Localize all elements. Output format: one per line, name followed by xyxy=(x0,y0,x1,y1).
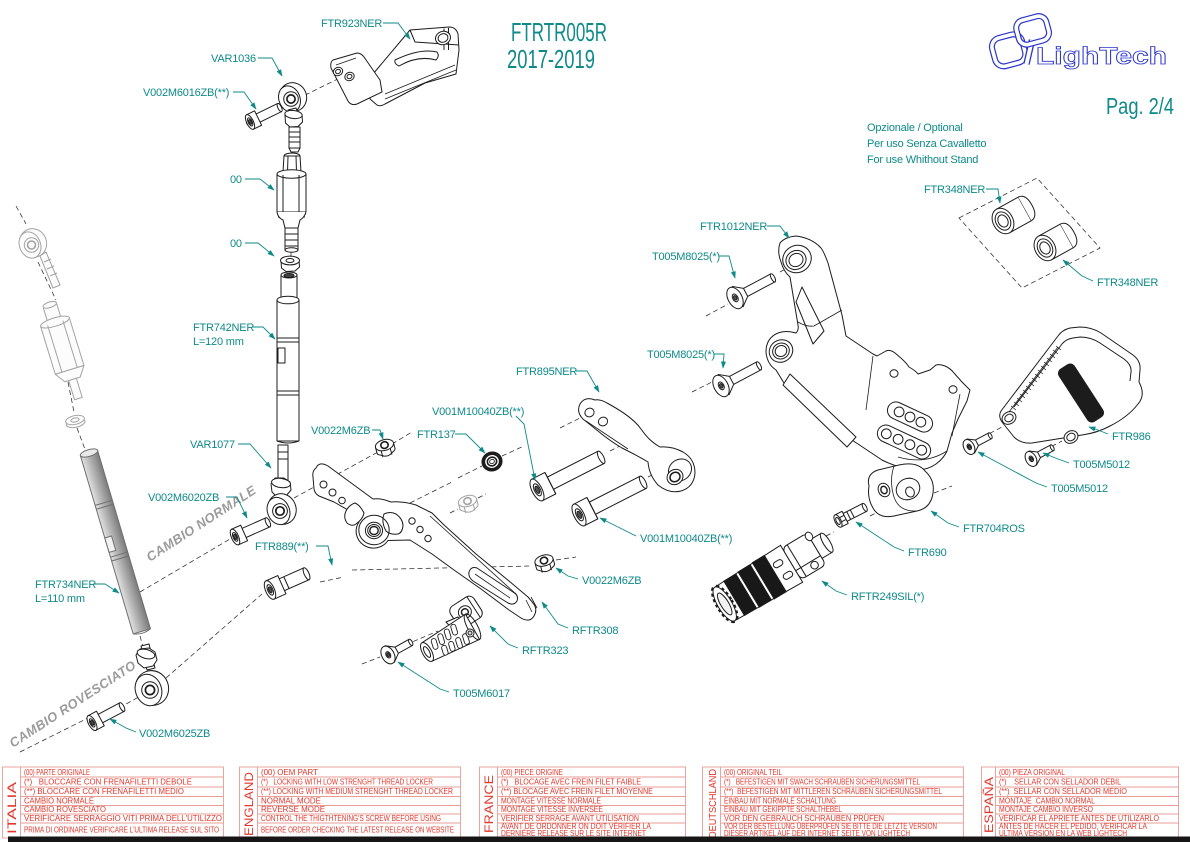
svg-text:For use Whithout Stand: For use Whithout Stand xyxy=(867,154,978,166)
svg-text:DERNIÉRE RELEASE SUR LE SITE I: DERNIÉRE RELEASE SUR LE SITE INTERNET xyxy=(501,829,646,838)
svg-text:00: 00 xyxy=(230,238,242,250)
svg-text:(*) LOCKING WITH LOW STRENGH: (*) LOCKING WITH LOW STRENGHT THREAD LOC… xyxy=(261,777,433,787)
svg-text:T005M8025(*): T005M8025(*) xyxy=(652,251,720,263)
svg-text:FTR742NER: FTR742NER xyxy=(193,322,254,334)
svg-text:(00) OEM PART: (00) OEM PART xyxy=(261,767,318,777)
svg-text:FTR348NER: FTR348NER xyxy=(924,184,985,196)
svg-text:LighTech: LighTech xyxy=(1036,43,1167,70)
svg-text:FTR895NER: FTR895NER xyxy=(516,366,577,378)
svg-text:(**) BEFESTIGEN MIT MITTLEREN: (**) BEFESTIGEN MIT MITTLEREN SCHRAUBEN … xyxy=(724,786,942,796)
svg-text:VERIFICARE SERRAGGIO VITI PRIM: VERIFICARE SERRAGGIO VITI PRIMA DELL'UTI… xyxy=(24,813,223,823)
svg-text:(*) BLOCAGE AVEC FREIN FILET: (*) BLOCAGE AVEC FREIN FILET FAIBLE xyxy=(501,777,641,787)
svg-text:FTR1012NER: FTR1012NER xyxy=(700,221,767,233)
svg-text:VAR1036: VAR1036 xyxy=(211,53,256,65)
svg-text:V002M6016ZB(**): V002M6016ZB(**) xyxy=(143,87,229,99)
svg-text:Per uso Senza Cavalletto: Per uso Senza Cavalletto xyxy=(867,138,986,150)
svg-text:CONTROL THE THIGTHTENING'S SCR: CONTROL THE THIGTHTENING'S SCREW BEFORE … xyxy=(261,813,441,823)
svg-text:Opzionale / Optional: Opzionale / Optional xyxy=(867,122,963,134)
svg-text:FTR734NER: FTR734NER xyxy=(35,579,96,591)
svg-text:ENGLAND: ENGLAND xyxy=(244,772,256,836)
svg-text:(*) SELLAR CON SELLADOR DEB: (*) SELLAR CON SELLADOR DEBIL xyxy=(999,777,1121,787)
svg-text:ITALIA: ITALIA xyxy=(7,782,19,834)
svg-text:T005M8025(*): T005M8025(*) xyxy=(647,349,715,361)
svg-text:(00) ORIGINAL TEIL: (00) ORIGINAL TEIL xyxy=(724,767,782,777)
svg-text:V001M10040ZB(**): V001M10040ZB(**) xyxy=(640,533,732,545)
svg-text:V0022M6ZB: V0022M6ZB xyxy=(582,575,641,587)
svg-text:BEFORE ORDER CHECKING THE LATE: BEFORE ORDER CHECKING THE LATEST RELEASE… xyxy=(261,826,454,835)
svg-text:T005M5012: T005M5012 xyxy=(1051,483,1108,495)
svg-text:DEUTSCHLAND: DEUTSCHLAND xyxy=(707,769,719,838)
svg-text:2017-2019: 2017-2019 xyxy=(507,44,595,74)
svg-text:(**) SELLAR CON SELLADOR MEDI: (**) SELLAR CON SELLADOR MEDIO xyxy=(999,786,1127,796)
svg-text:FTR986: FTR986 xyxy=(1112,431,1151,443)
svg-text:PRIMA DI ORDINARE VERIFICARE L: PRIMA DI ORDINARE VERIFICARE L'ULTIMA RE… xyxy=(24,826,219,835)
svg-text:RFTR249SIL(*): RFTR249SIL(*) xyxy=(851,591,924,603)
svg-text:FTR704ROS: FTR704ROS xyxy=(963,523,1025,535)
svg-text:(*) BEFESTIGEN MIT SWACH SCH: (*) BEFESTIGEN MIT SWACH SCHRAUBEN SICHE… xyxy=(724,777,920,787)
svg-text:FTRTR005R: FTRTR005R xyxy=(511,17,607,47)
svg-text:T005M6017: T005M6017 xyxy=(453,688,510,700)
svg-text:RFTR308: RFTR308 xyxy=(572,625,618,637)
svg-text:RFTR323: RFTR323 xyxy=(522,645,568,657)
svg-text:(*) BLOCCARE CON FRENAFILETT: (*) BLOCCARE CON FRENAFILETTI DEBOLE xyxy=(24,777,192,787)
svg-text:ULTIMA VERSION EN LA WEB LIGHT: ULTIMA VERSION EN LA WEB LIGHTECH xyxy=(999,829,1127,838)
svg-text:V002M6025ZB: V002M6025ZB xyxy=(139,728,210,740)
svg-text:00: 00 xyxy=(230,174,242,186)
svg-text:FTR923NER: FTR923NER xyxy=(321,18,382,30)
svg-text:FTR348NER: FTR348NER xyxy=(1097,277,1158,289)
svg-text:DIESER ARTIKEL AUF DER INTERNE: DIESER ARTIKEL AUF DER INTERNET SEITE VO… xyxy=(724,829,910,838)
svg-text:FTR889(**): FTR889(**) xyxy=(255,541,309,553)
svg-text:(**) BLOCCARE CON FRENAFILETTI: (**) BLOCCARE CON FRENAFILETTI MEDIO xyxy=(24,786,184,796)
svg-text:FRANCE: FRANCE xyxy=(484,775,496,833)
svg-text:(**) LOCKING WITH MEDIUM STREN: (**) LOCKING WITH MEDIUM STRENGHT THREAD… xyxy=(261,786,453,796)
svg-text:Pag. 2/4: Pag. 2/4 xyxy=(1106,93,1174,119)
svg-text:T005M5012: T005M5012 xyxy=(1073,459,1130,471)
svg-text:V001M10040ZB(**): V001M10040ZB(**) xyxy=(432,406,524,418)
svg-text:L=120 mm: L=120 mm xyxy=(193,336,244,348)
svg-text:FTR690: FTR690 xyxy=(908,547,947,559)
svg-text:(**) BLOCAGE AVEC FREIN FILET: (**) BLOCAGE AVEC FREIN FILET MOYENNE xyxy=(501,786,653,796)
svg-text:V0022M6ZB: V0022M6ZB xyxy=(311,425,370,437)
svg-text:(00) PIEZA ORIGINAL: (00) PIEZA ORIGINAL xyxy=(999,767,1065,777)
svg-text:FTR137: FTR137 xyxy=(417,429,456,441)
svg-text:(00) PIECE ORIGINE: (00) PIECE ORIGINE xyxy=(501,767,563,777)
svg-text:V002M6020ZB: V002M6020ZB xyxy=(148,492,219,504)
svg-text:L=110 mm: L=110 mm xyxy=(35,593,85,605)
svg-text:(00) PARTE ORIGINALE: (00) PARTE ORIGINALE xyxy=(24,767,90,777)
svg-text:ESPAÑA: ESPAÑA xyxy=(983,777,996,833)
svg-text:VAR1077: VAR1077 xyxy=(190,439,235,451)
